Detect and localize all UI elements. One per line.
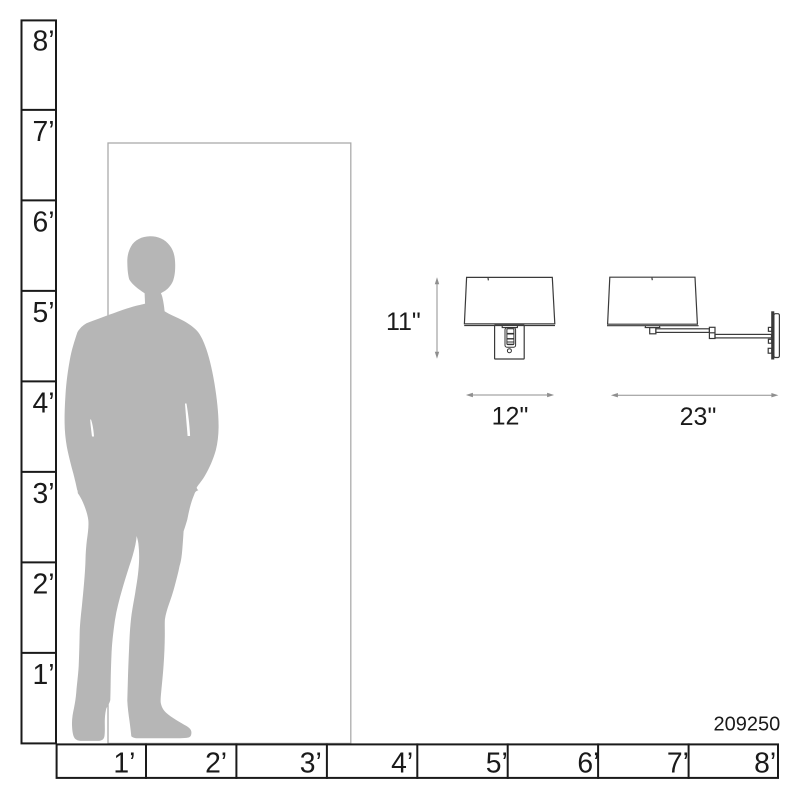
svg-text:4’: 4’ (32, 386, 54, 418)
svg-text:8’: 8’ (32, 24, 54, 56)
svg-text:2’: 2’ (32, 567, 54, 599)
svg-text:7’: 7’ (32, 115, 54, 147)
svg-text:209250: 209250 (714, 714, 781, 736)
svg-text:1’: 1’ (113, 747, 135, 779)
svg-text:7’: 7’ (667, 747, 689, 779)
svg-text:8’: 8’ (754, 747, 776, 779)
svg-text:2’: 2’ (205, 747, 227, 779)
svg-text:23": 23" (680, 403, 717, 431)
svg-text:11": 11" (386, 308, 421, 336)
svg-text:5’: 5’ (32, 296, 54, 328)
svg-text:3’: 3’ (32, 477, 54, 509)
svg-text:3’: 3’ (300, 747, 322, 779)
svg-text:6’: 6’ (577, 747, 599, 779)
svg-text:12": 12" (492, 402, 529, 430)
svg-text:1’: 1’ (32, 658, 54, 690)
svg-text:6’: 6’ (32, 205, 54, 237)
svg-text:4’: 4’ (391, 747, 413, 779)
svg-text:5’: 5’ (486, 747, 508, 779)
